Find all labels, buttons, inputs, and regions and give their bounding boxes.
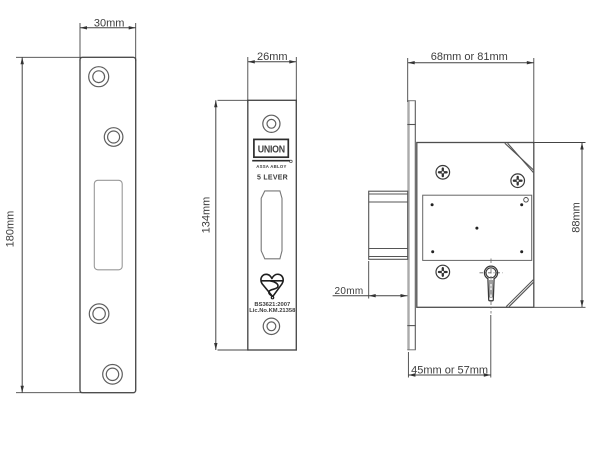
svg-text:68mm or 81mm: 68mm or 81mm bbox=[431, 51, 508, 63]
svg-text:Lic.No.KM.21358: Lic.No.KM.21358 bbox=[249, 308, 296, 314]
svg-text:BS3621:2007: BS3621:2007 bbox=[254, 302, 290, 308]
svg-text:88mm: 88mm bbox=[570, 202, 582, 233]
svg-text:180mm: 180mm bbox=[5, 211, 17, 248]
svg-text:UNION: UNION bbox=[258, 143, 285, 155]
svg-text:5 LEVER: 5 LEVER bbox=[257, 174, 288, 181]
svg-text:26mm: 26mm bbox=[257, 51, 288, 63]
svg-text:134mm: 134mm bbox=[200, 197, 212, 234]
svg-text:ASSA ABLOY: ASSA ABLOY bbox=[256, 164, 286, 169]
